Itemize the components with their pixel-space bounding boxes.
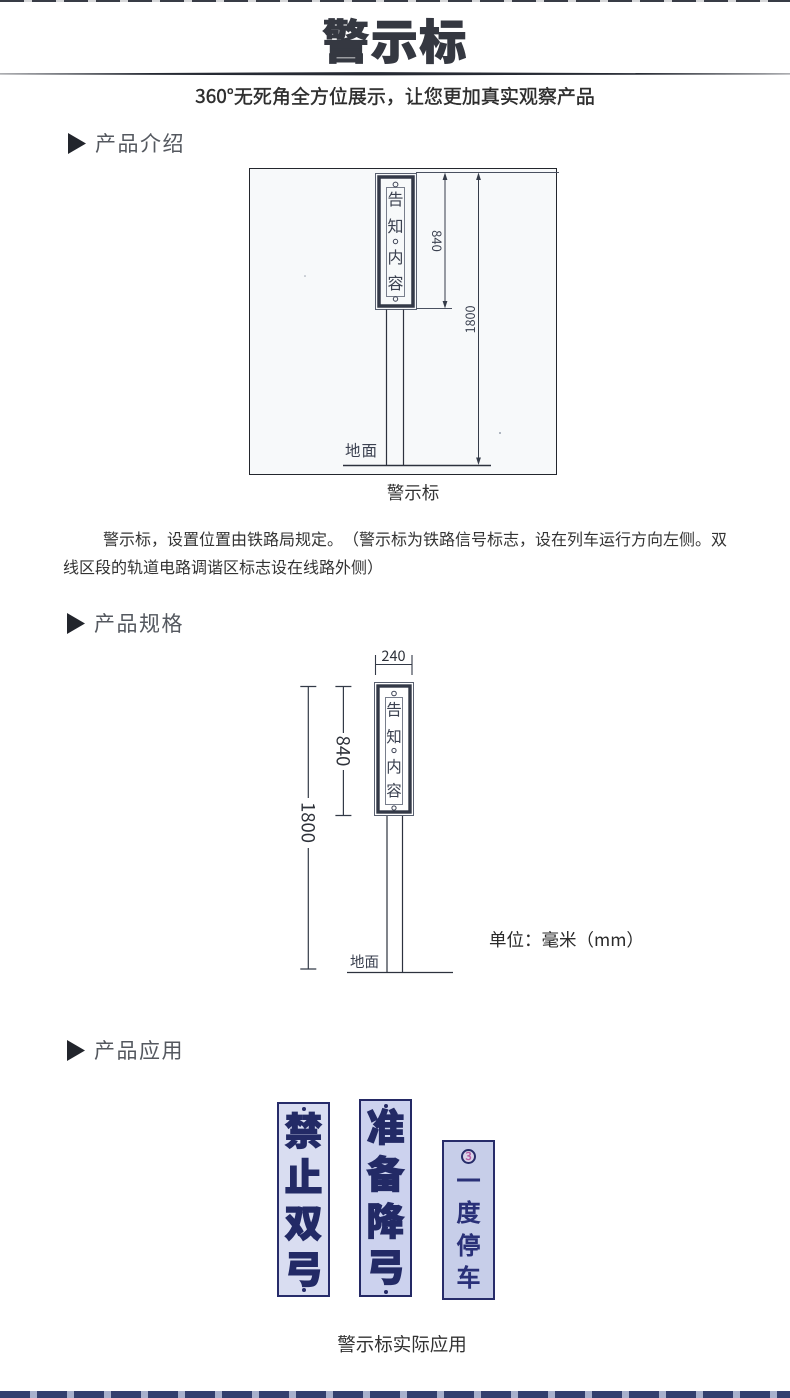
svg-text:告: 告	[386, 698, 402, 720]
svg-text:知: 知	[387, 213, 403, 237]
svg-text:容: 容	[386, 779, 402, 801]
svg-text:840: 840	[428, 230, 447, 252]
svg-text:地面: 地面	[350, 951, 379, 972]
svg-text:地面: 地面	[345, 439, 378, 461]
svg-text:内: 内	[387, 244, 403, 268]
svg-text:内: 内	[386, 755, 402, 777]
svg-text:1800: 1800	[460, 306, 479, 334]
svg-text:容: 容	[387, 270, 403, 294]
svg-text:840: 840	[331, 736, 357, 767]
svg-text:1800: 1800	[296, 802, 322, 843]
svg-text:240: 240	[381, 645, 405, 666]
svg-text:告: 告	[387, 186, 403, 210]
svg-text:知: 知	[386, 725, 402, 747]
